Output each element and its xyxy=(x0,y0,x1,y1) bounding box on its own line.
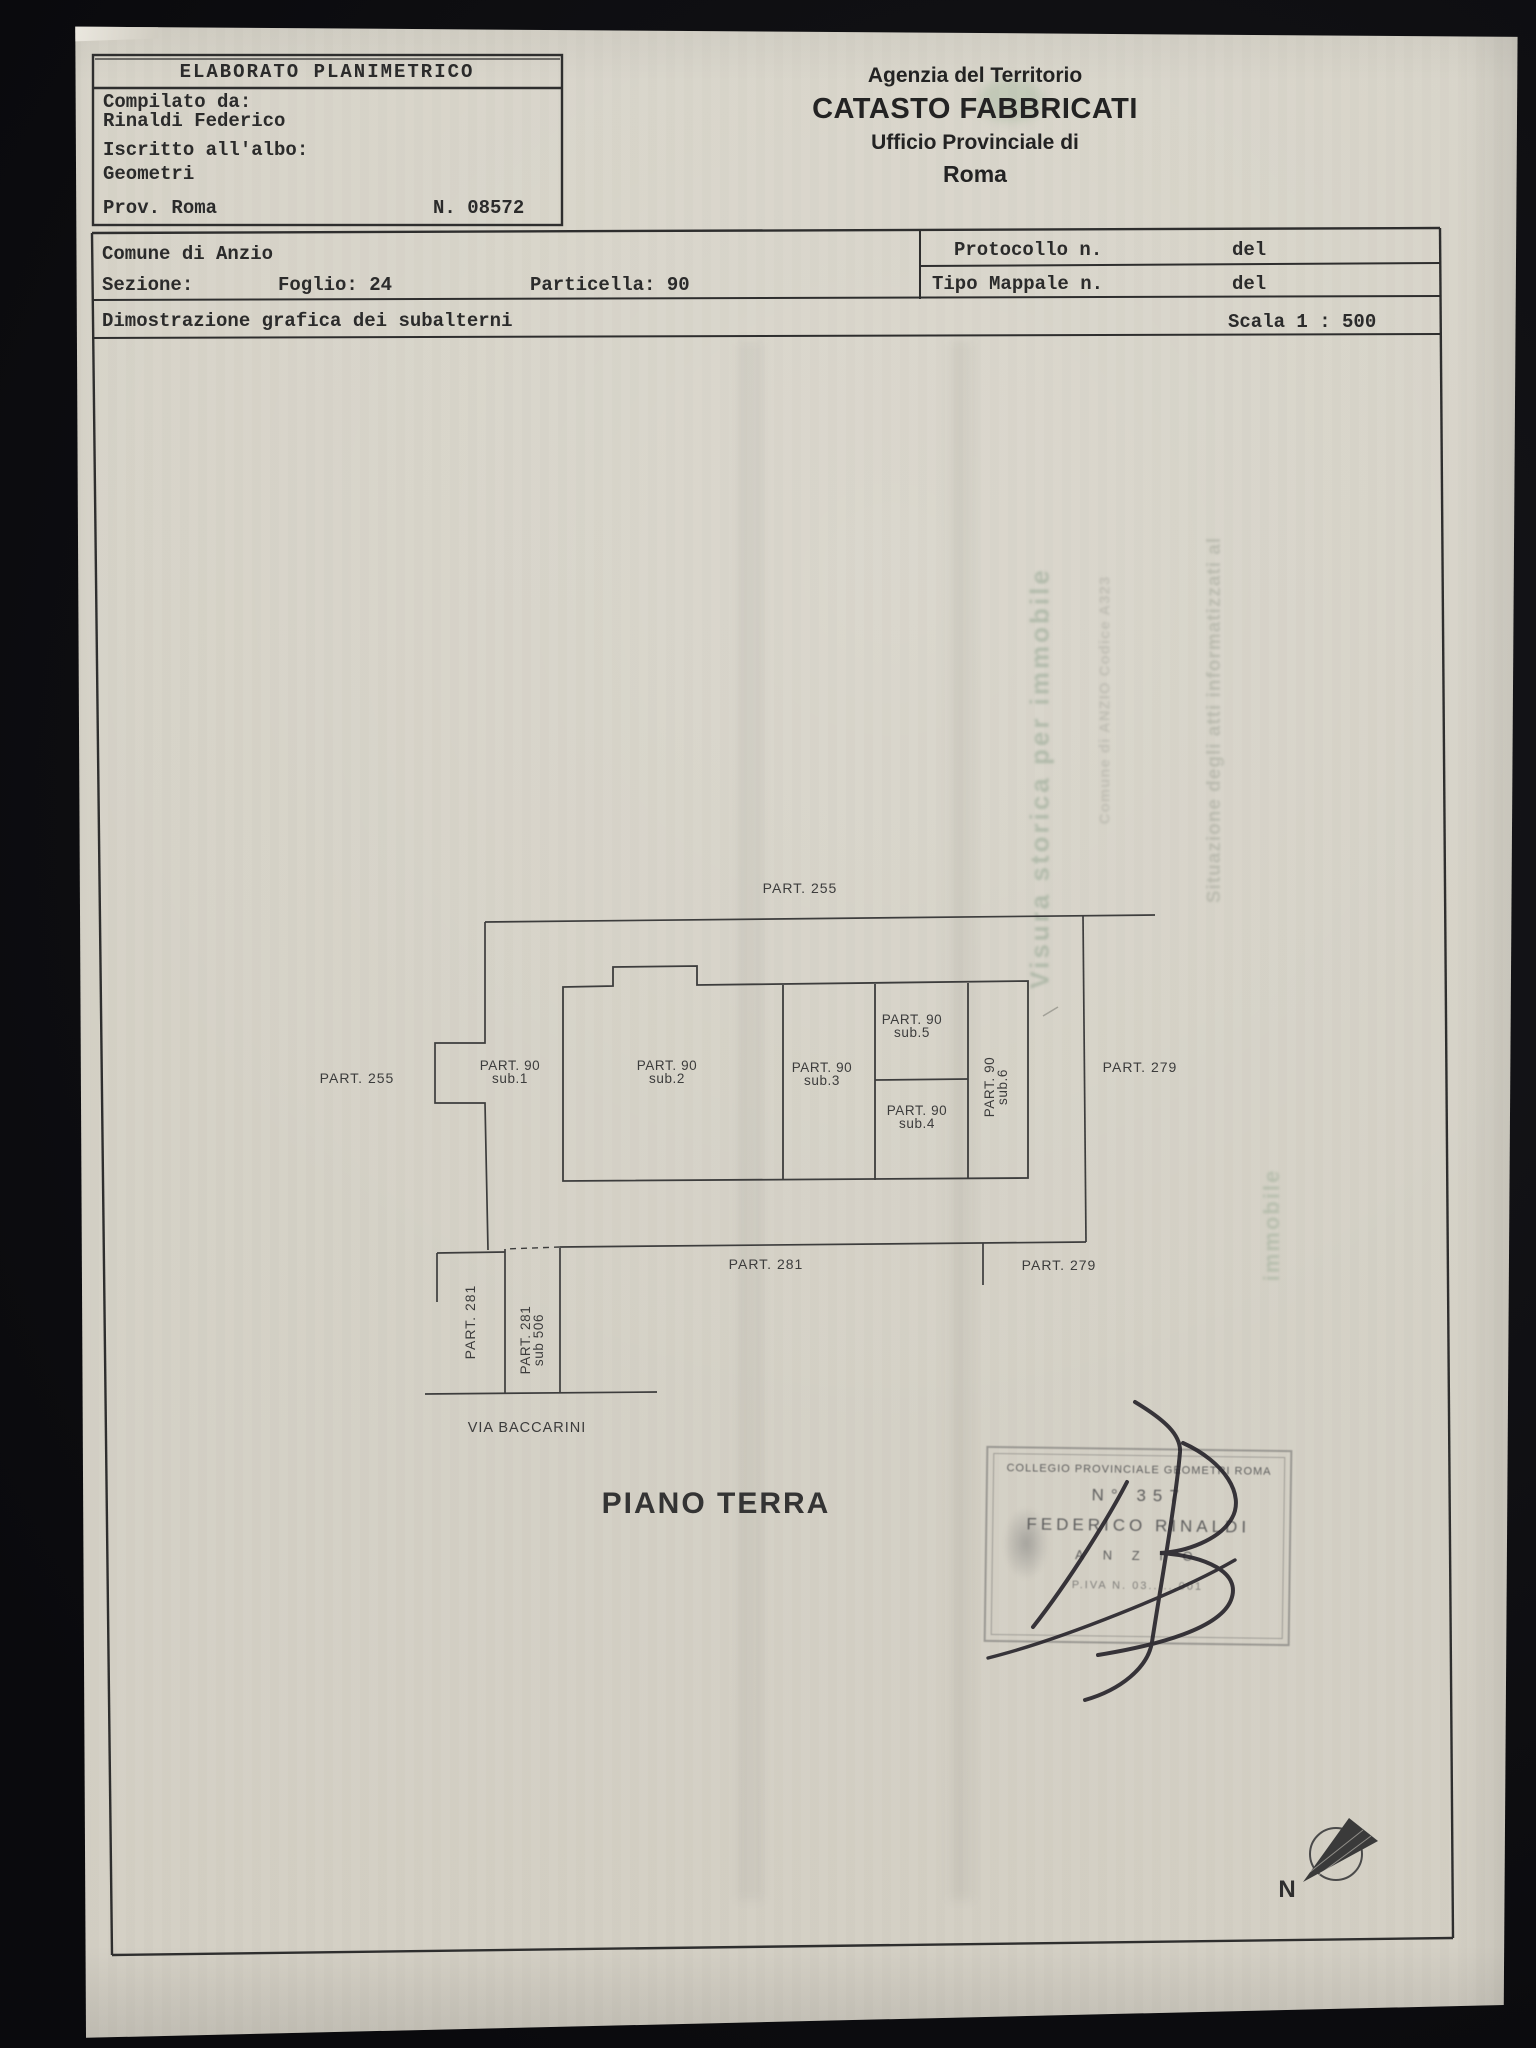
sub6-sub: sub.6 xyxy=(995,1069,1010,1105)
albo-label: Iscritto all'albo: xyxy=(103,139,308,161)
label-sub3: PART. 90 sub.3 xyxy=(792,1061,853,1087)
label-strip-506: PART. 281 sub 506 xyxy=(519,1306,545,1375)
particella-field: Particella: 90 xyxy=(530,274,690,296)
paper-sheet: Visura storica per immobile Situazione d… xyxy=(0,0,1536,2048)
sub3-sub: sub.3 xyxy=(804,1073,840,1088)
protocollo-label: Protocollo n. xyxy=(954,239,1102,261)
subtitle: Dimostrazione grafica dei subalterni xyxy=(102,310,512,332)
label-sub2: PART. 90 sub.2 xyxy=(637,1059,698,1085)
prov-label: Prov. Roma xyxy=(103,197,217,219)
street-name: VIA BACCARINI xyxy=(468,1420,587,1436)
label-sub6: PART. 90 sub.6 xyxy=(983,1057,1009,1118)
agency-line3: Ufficio Provinciale di xyxy=(871,131,1079,155)
label-part-255-left: PART. 255 xyxy=(320,1070,395,1086)
floor-title: PIANO TERRA xyxy=(602,1487,831,1521)
albo-value: Geometri xyxy=(103,163,194,185)
paper-corner-curl xyxy=(72,13,159,42)
protocollo-del: del xyxy=(1232,239,1266,261)
bleedthrough-text: Comune di ANZIO Codice A323 xyxy=(1097,576,1114,824)
sub2-sub: sub.2 xyxy=(649,1071,685,1086)
albo-number: N. 08572 xyxy=(433,197,524,219)
agency-line1: Agenzia del Territorio xyxy=(868,64,1082,88)
agency-line2: CATASTO FABBRICATI xyxy=(812,93,1138,126)
stamp-line: N° 357 xyxy=(988,1484,1290,1508)
tipo-mappale-label: Tipo Mappale n. xyxy=(932,273,1103,295)
label-sub4: PART. 90 sub.4 xyxy=(887,1104,948,1130)
bleedthrough-text: Situazione degli atti informatizzati al xyxy=(1204,537,1226,903)
sub4-sub: sub.4 xyxy=(899,1116,935,1131)
bleedthrough-text: Visura storica per immobile xyxy=(1025,567,1056,989)
professional-stamp: COLLEGIO PROVINCIALE GEOMETRI ROMA N° 35… xyxy=(984,1446,1293,1646)
agency-line4: Roma xyxy=(943,161,1007,188)
label-sub5: PART. 90 sub.5 xyxy=(882,1013,943,1039)
sub1-sub: sub.1 xyxy=(492,1071,528,1086)
scala-label: Scala 1 : 500 xyxy=(1228,311,1376,333)
label-sub1: PART. 90 sub.1 xyxy=(480,1059,541,1085)
comune-field: Comune di Anzio xyxy=(102,243,273,265)
scan-streak xyxy=(738,340,762,1900)
tipo-mappale-del: del xyxy=(1232,273,1266,295)
label-strip-281: PART. 281 xyxy=(462,1285,478,1360)
compass-north-label: N xyxy=(1278,1876,1295,1904)
scan-streak xyxy=(950,340,972,1900)
sezione-label: Sezione: xyxy=(102,274,193,296)
compilato-value: Rinaldi Federico xyxy=(103,110,285,132)
elaborato-title: ELABORATO PLANIMETRICO xyxy=(180,61,475,83)
stamp-line: FEDERICO RINALDI xyxy=(987,1514,1289,1538)
label-part-255-top: PART. 255 xyxy=(763,880,838,896)
sub5-sub: sub.5 xyxy=(894,1025,930,1040)
photographed-document: Visura storica per immobile Situazione d… xyxy=(0,0,1536,2048)
label-part-279-bottom: PART. 279 xyxy=(1022,1257,1097,1273)
foglio-field: Foglio: 24 xyxy=(278,274,392,296)
strip506-sub: sub 506 xyxy=(531,1314,546,1366)
bleedthrough-text: immobile xyxy=(1259,1169,1285,1282)
label-part-281-bottom: PART. 281 xyxy=(729,1256,804,1272)
label-part-279-right: PART. 279 xyxy=(1103,1059,1178,1075)
